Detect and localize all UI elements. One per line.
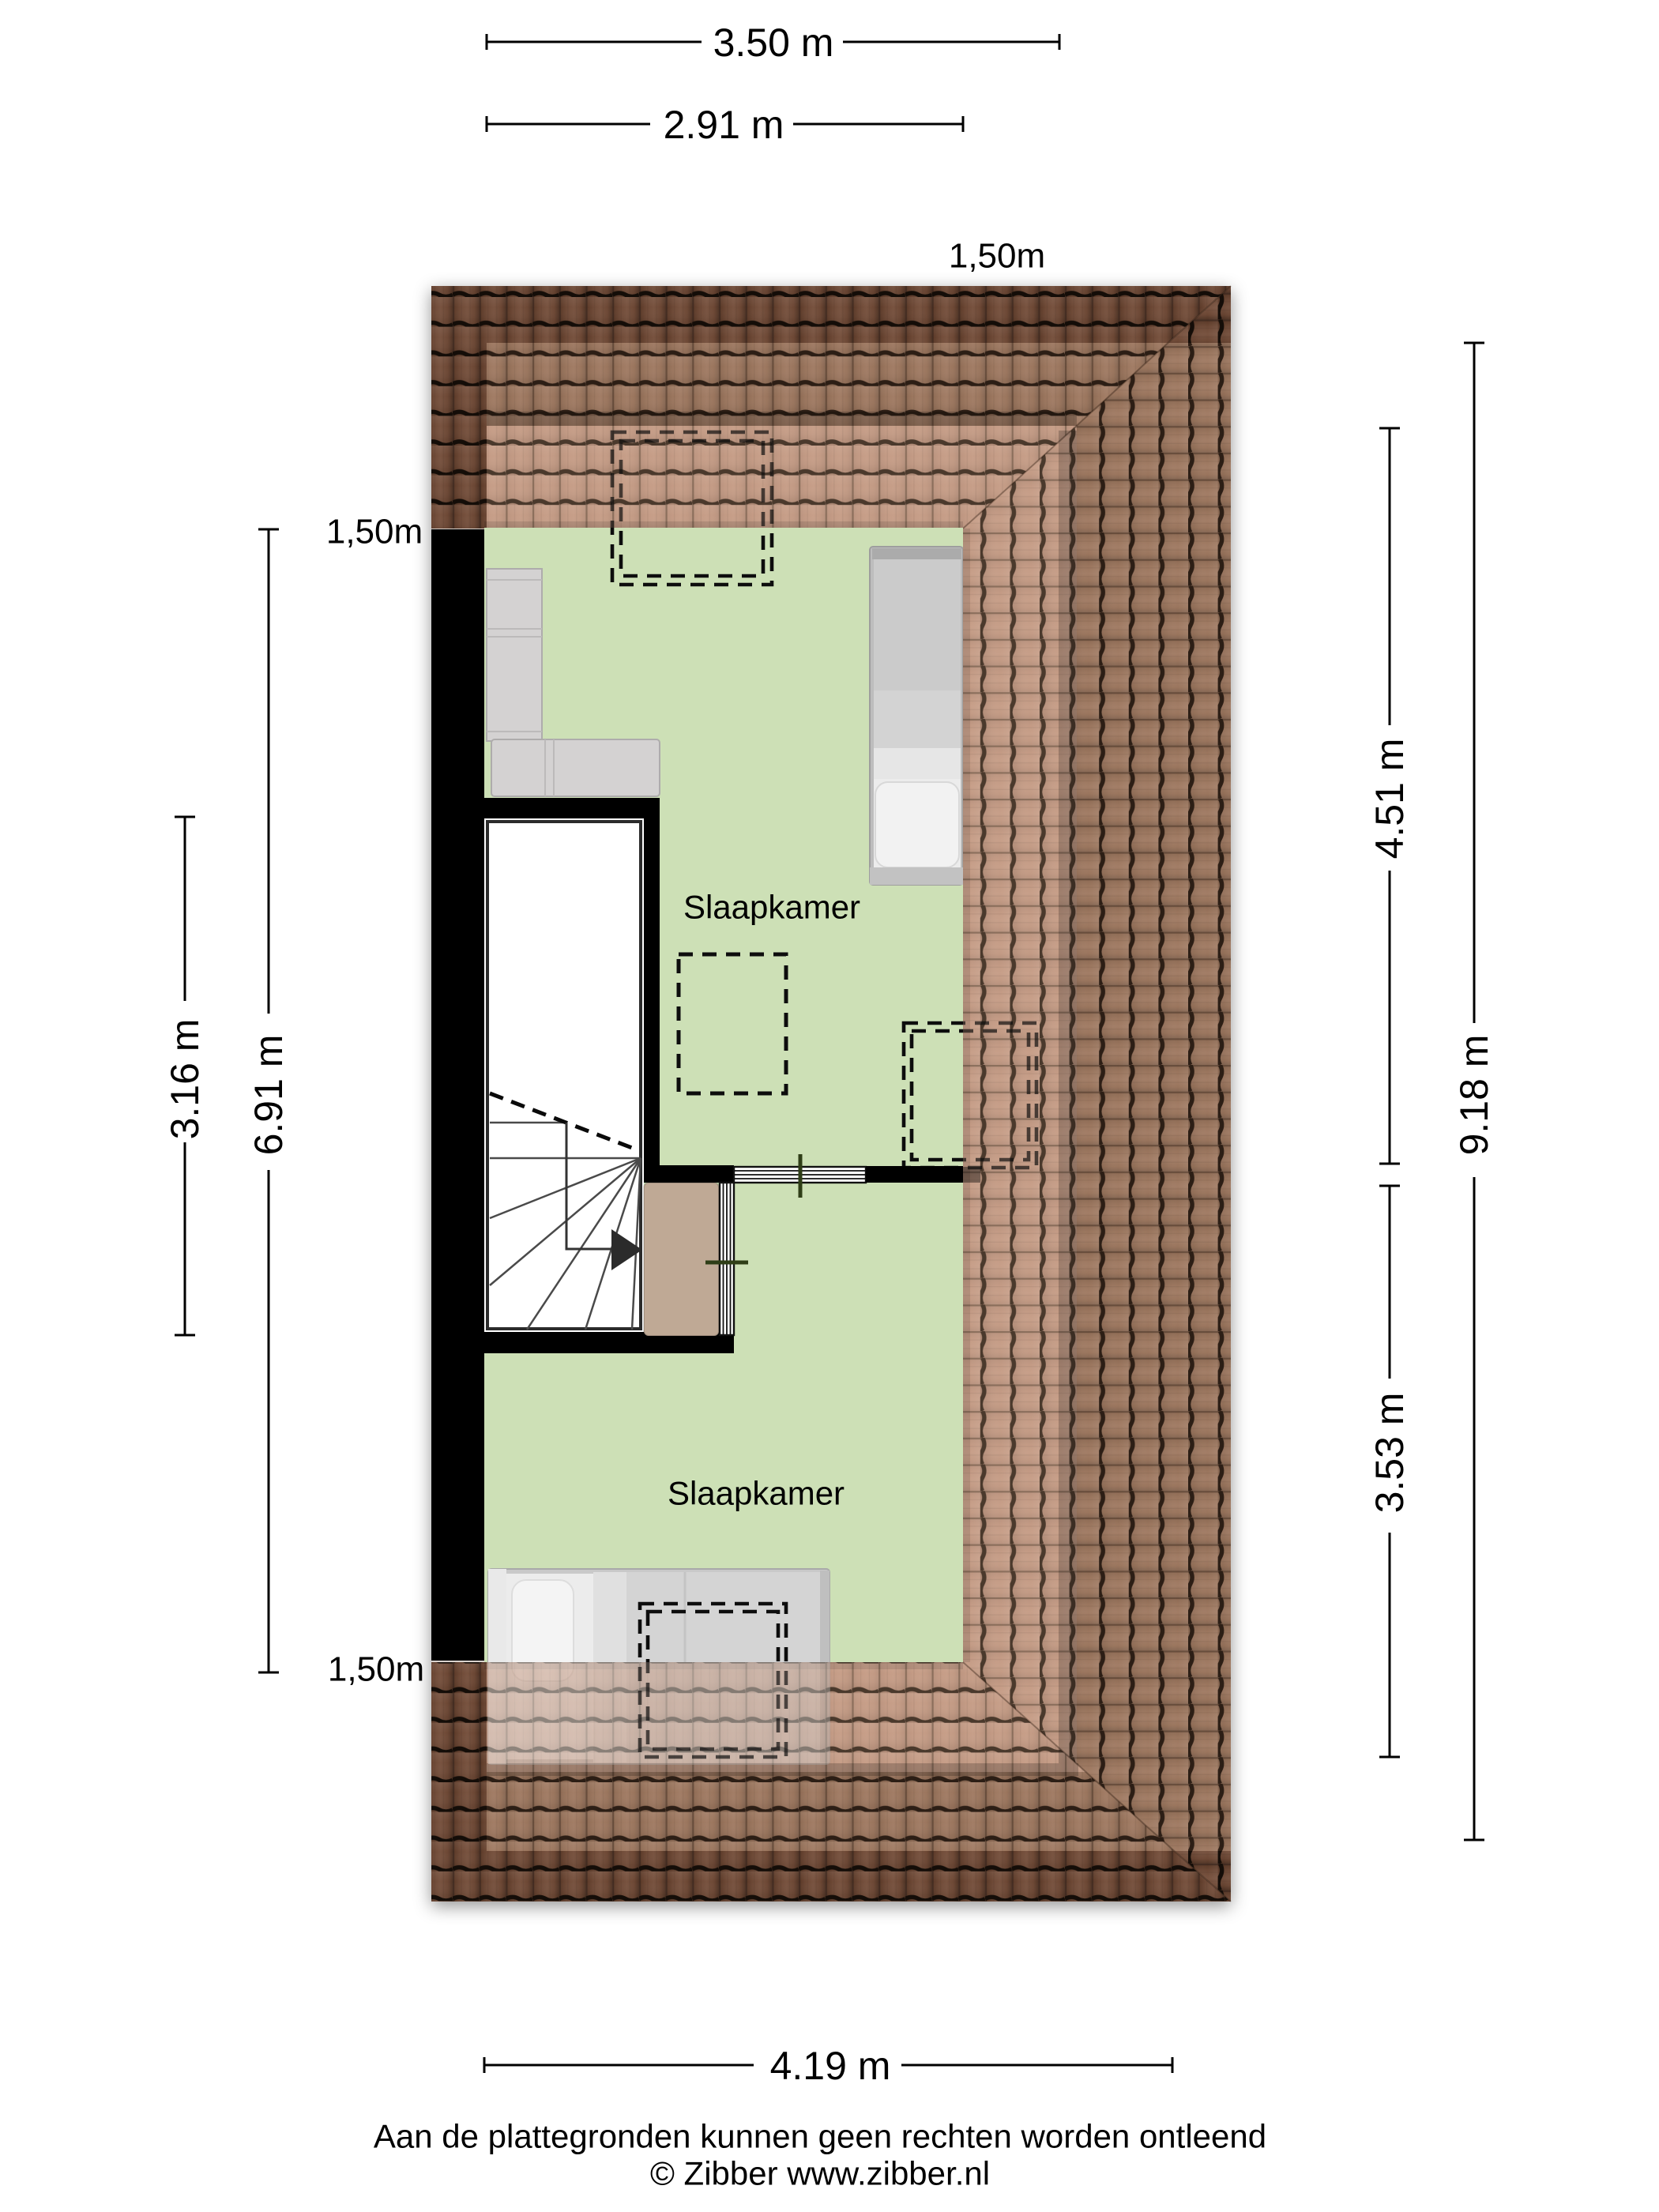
svg-text:3.16 m: 3.16 m [163,1019,207,1140]
svg-text:Slaapkamer: Slaapkamer [683,889,860,926]
svg-text:1,50m: 1,50m [326,513,423,551]
svg-text:Slaapkamer: Slaapkamer [668,1475,845,1512]
svg-text:9.18 m: 9.18 m [1452,1035,1496,1156]
svg-text:4.19 m: 4.19 m [770,2044,891,2088]
svg-text:1,50m: 1,50m [949,237,1045,276]
svg-text:3.53 m: 3.53 m [1367,1393,1412,1514]
svg-text:6.91 m: 6.91 m [246,1035,291,1156]
svg-text:© Zibber www.zibber.nl: © Zibber www.zibber.nl [650,2155,990,2192]
svg-text:Aan de plattegronden kunnen ge: Aan de plattegronden kunnen geen rechten… [374,2118,1266,2155]
svg-text:4.51 m: 4.51 m [1367,739,1412,860]
svg-text:3.50 m: 3.50 m [713,21,834,65]
svg-text:2.91 m: 2.91 m [664,103,784,147]
svg-text:1,50m: 1,50m [328,1650,424,1689]
